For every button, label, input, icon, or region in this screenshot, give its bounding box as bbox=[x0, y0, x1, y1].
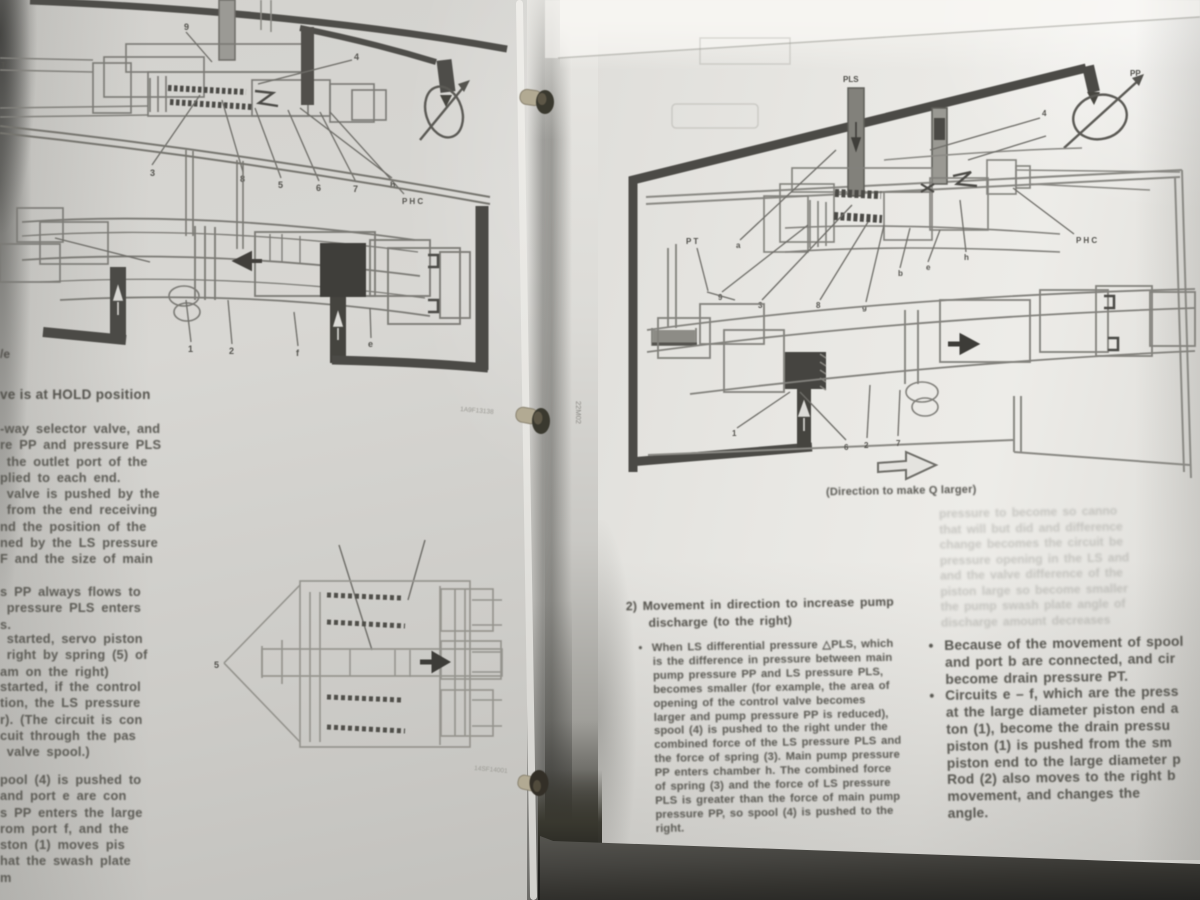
svg-text:P H C: P H C bbox=[402, 197, 423, 206]
svg-text:1: 1 bbox=[188, 344, 193, 354]
svg-text:9: 9 bbox=[184, 22, 189, 32]
svg-text:PP: PP bbox=[1130, 69, 1141, 78]
svg-text:2: 2 bbox=[864, 441, 869, 450]
svg-text:PLS: PLS bbox=[843, 75, 859, 84]
svg-text:3: 3 bbox=[758, 301, 763, 310]
svg-text:9: 9 bbox=[718, 293, 723, 302]
svg-text:g: g bbox=[862, 303, 867, 312]
svg-text:P H C: P H C bbox=[1076, 236, 1097, 245]
svg-text:5: 5 bbox=[214, 660, 219, 670]
svg-text:h: h bbox=[964, 253, 969, 262]
svg-text:e: e bbox=[368, 339, 373, 349]
svg-text:8: 8 bbox=[816, 301, 821, 310]
svg-text:a: a bbox=[736, 241, 741, 250]
svg-text:P T: P T bbox=[686, 237, 698, 246]
svg-text:T: T bbox=[1, 61, 6, 70]
svg-text:22M02: 22M02 bbox=[574, 401, 583, 424]
svg-text:h: h bbox=[390, 180, 396, 190]
svg-text:7: 7 bbox=[896, 439, 901, 448]
svg-text:4: 4 bbox=[1042, 109, 1047, 118]
svg-text:e: e bbox=[926, 263, 931, 272]
svg-text:1A9F13138: 1A9F13138 bbox=[460, 406, 494, 416]
svg-text:7: 7 bbox=[353, 184, 358, 194]
svg-text:4: 4 bbox=[354, 52, 359, 62]
svg-text:2: 2 bbox=[229, 346, 234, 356]
svg-text:3: 3 bbox=[150, 168, 155, 178]
svg-text:6: 6 bbox=[316, 183, 321, 193]
svg-text:6: 6 bbox=[844, 443, 849, 452]
svg-text:1: 1 bbox=[732, 429, 737, 438]
svg-text:14SF14001: 14SF14001 bbox=[474, 765, 508, 775]
svg-text:b: b bbox=[898, 269, 903, 278]
svg-text:f: f bbox=[296, 348, 300, 358]
svg-text:5: 5 bbox=[278, 180, 283, 190]
